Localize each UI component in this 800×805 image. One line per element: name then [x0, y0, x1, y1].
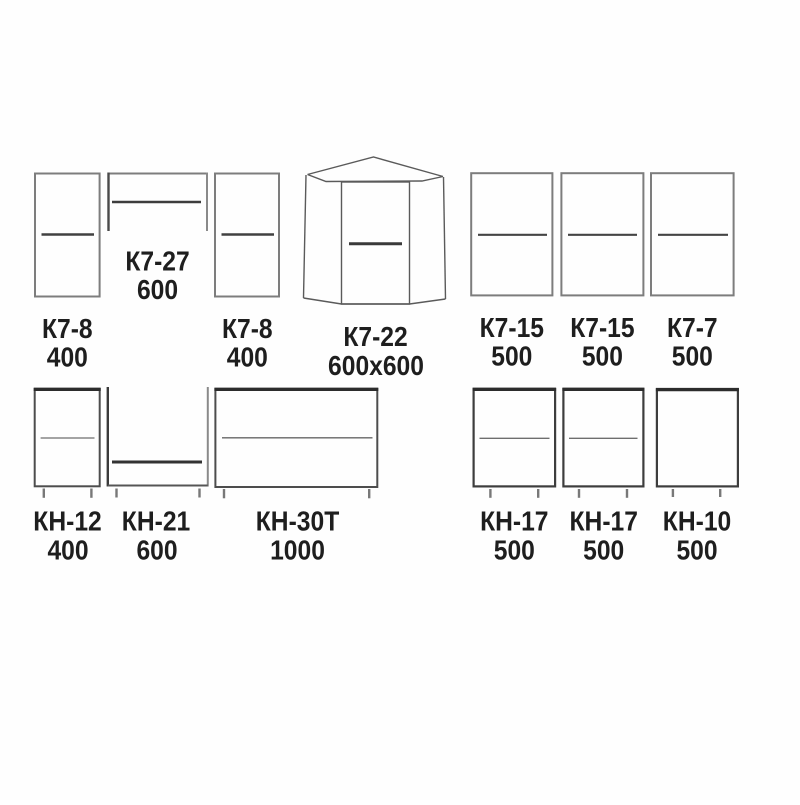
svg-text:500: 500 [494, 534, 535, 566]
svg-text:500: 500 [491, 340, 532, 372]
svg-text:К7-27: К7-27 [125, 245, 189, 277]
svg-text:К7-8: К7-8 [42, 313, 93, 345]
svg-text:КН-10: КН-10 [663, 505, 731, 537]
svg-text:600: 600 [136, 534, 177, 566]
svg-text:КН-21: КН-21 [122, 505, 190, 537]
svg-text:К7-22: К7-22 [343, 321, 407, 353]
svg-text:К7-15: К7-15 [570, 312, 634, 344]
svg-text:400: 400 [47, 534, 88, 566]
svg-text:КН-30Т: КН-30Т [256, 505, 339, 537]
svg-text:КН-17: КН-17 [569, 505, 637, 537]
svg-text:К7-7: К7-7 [667, 312, 718, 344]
svg-text:500: 500 [583, 534, 624, 566]
svg-text:400: 400 [227, 341, 268, 373]
svg-text:500: 500 [672, 340, 713, 372]
svg-text:600х600: 600х600 [328, 350, 424, 382]
svg-text:600: 600 [137, 274, 178, 306]
svg-text:500: 500 [582, 340, 623, 372]
svg-text:КН-12: КН-12 [33, 505, 101, 537]
svg-text:500: 500 [676, 534, 717, 566]
svg-text:К7-15: К7-15 [480, 312, 544, 344]
svg-text:1000: 1000 [270, 534, 325, 566]
svg-text:К7-8: К7-8 [222, 313, 273, 345]
svg-text:КН-17: КН-17 [480, 505, 548, 537]
svg-text:400: 400 [47, 341, 88, 373]
